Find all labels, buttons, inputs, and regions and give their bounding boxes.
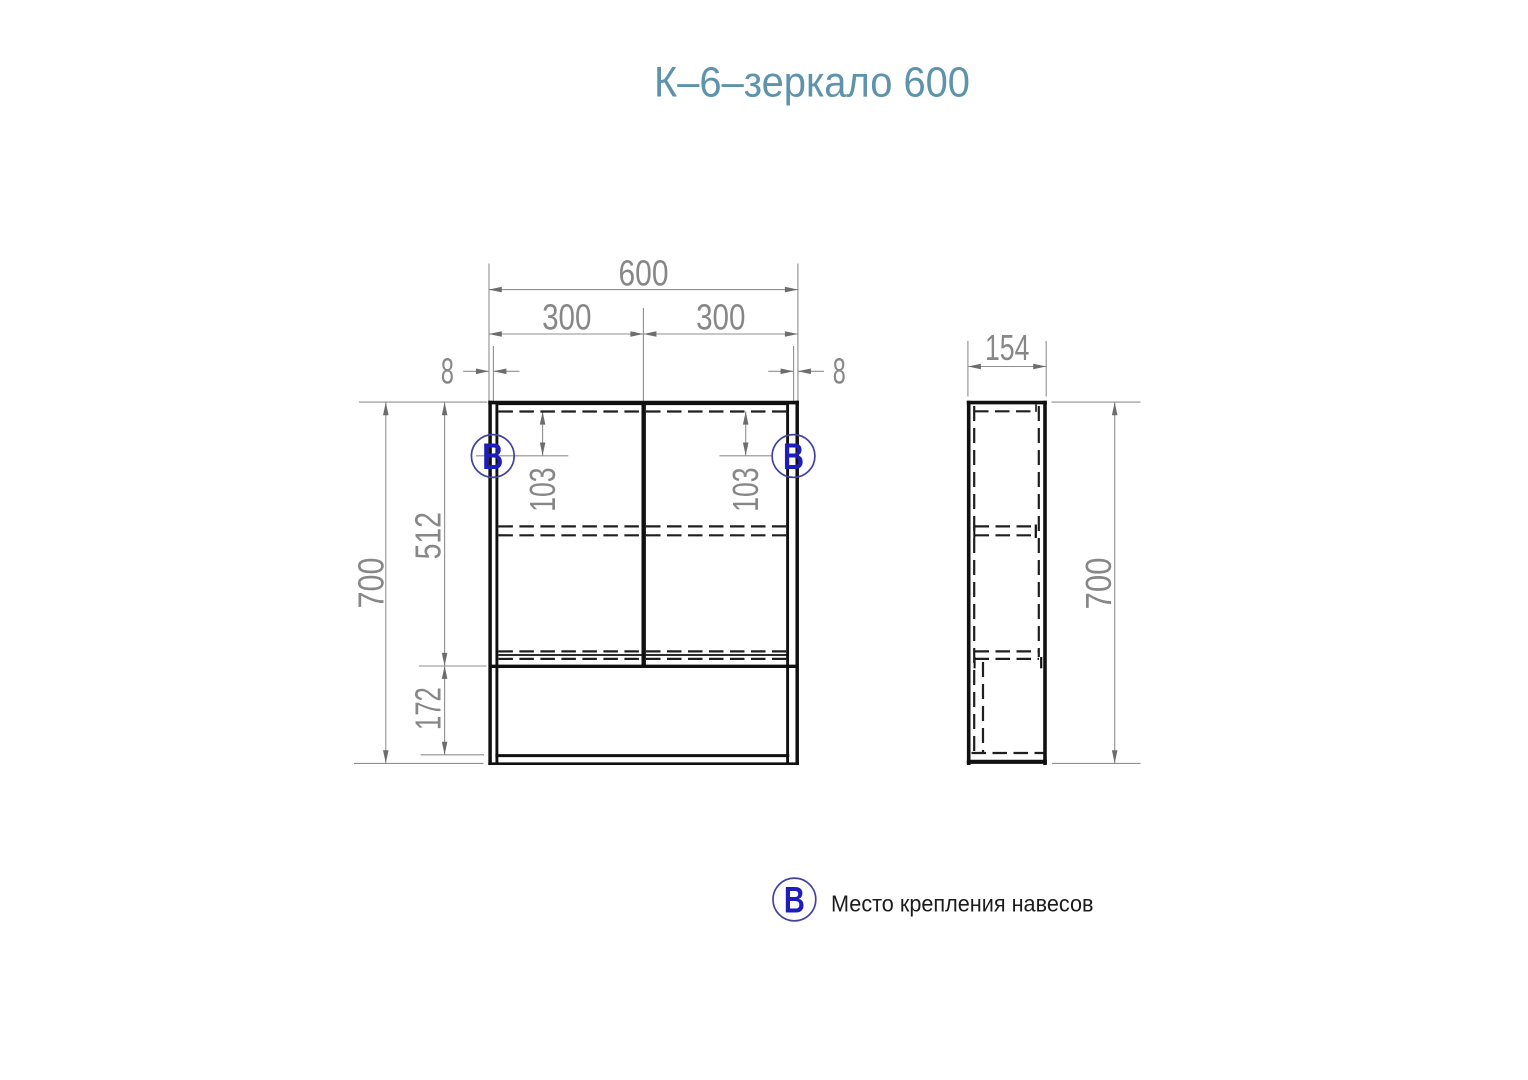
svg-text:172: 172	[408, 687, 449, 730]
svg-text:700: 700	[351, 558, 392, 609]
svg-text:103: 103	[725, 467, 766, 511]
svg-text:300: 300	[696, 296, 745, 337]
svg-text:8: 8	[833, 350, 846, 391]
svg-text:600: 600	[619, 253, 669, 294]
svg-text:В: В	[783, 436, 804, 477]
svg-text:300: 300	[542, 296, 591, 337]
svg-text:103: 103	[522, 467, 563, 511]
svg-text:700: 700	[1078, 558, 1119, 610]
svg-text:Место крепления навесов: Место крепления навесов	[831, 890, 1094, 916]
svg-text:К–6–зеркало 600: К–6–зеркало 600	[654, 59, 970, 106]
svg-text:154: 154	[985, 327, 1029, 368]
svg-text:512: 512	[408, 512, 449, 559]
svg-text:В: В	[482, 436, 503, 477]
svg-text:8: 8	[441, 350, 454, 391]
svg-text:В: В	[784, 880, 805, 921]
